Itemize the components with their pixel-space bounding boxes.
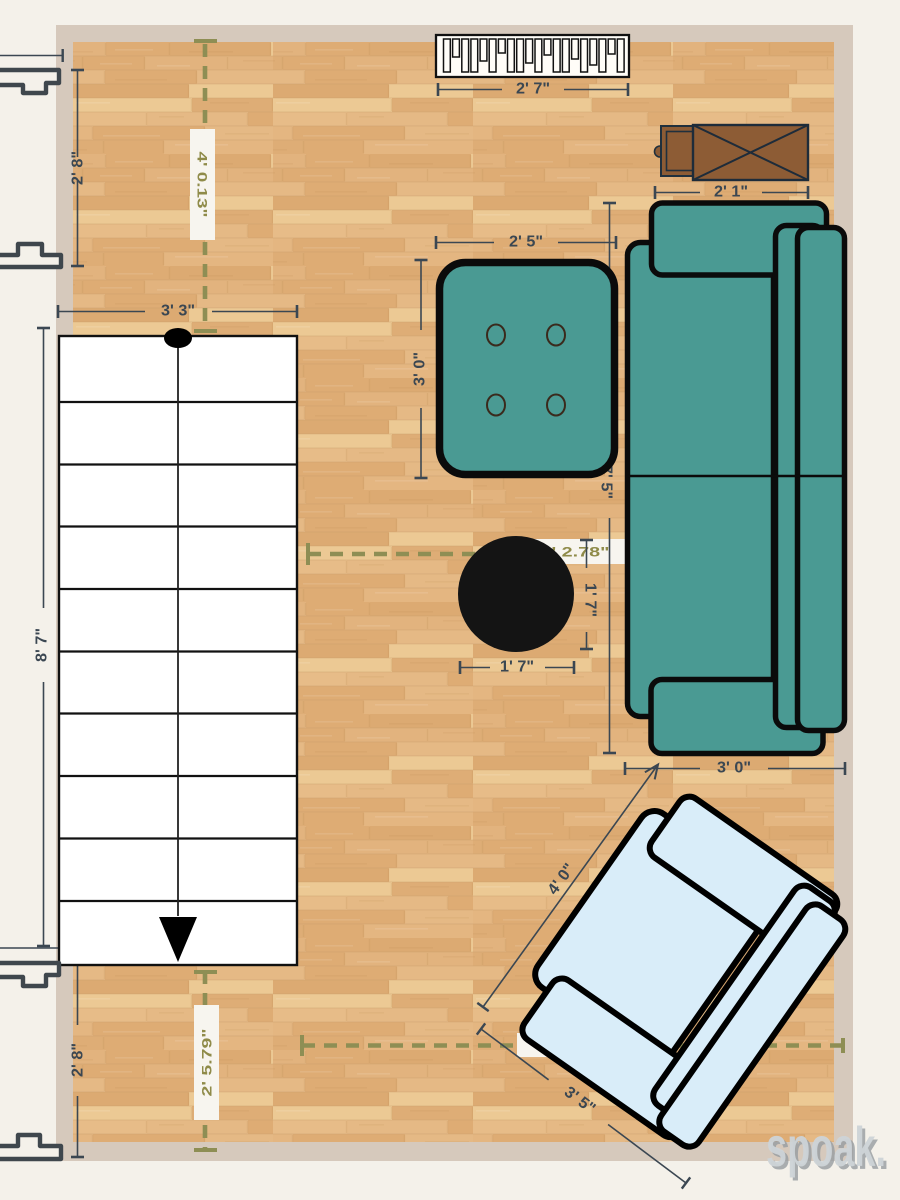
svg-text:1' 7": 1' 7" [582, 583, 599, 617]
svg-text:2' 8": 2' 8" [70, 151, 87, 185]
svg-text:3' 0": 3' 0" [412, 352, 429, 386]
svg-text:2' 5": 2' 5" [509, 234, 543, 251]
svg-text:1' 7": 1' 7" [500, 659, 534, 676]
svg-text:2' 5.79": 2' 5.79" [199, 1029, 215, 1097]
svg-text:3' 0": 3' 0" [717, 760, 751, 777]
svg-text:2' 8": 2' 8" [70, 1043, 87, 1077]
svg-text:spoak.: spoak. [766, 1115, 886, 1178]
svg-text:2' 1": 2' 1" [714, 184, 748, 201]
svg-text:3' 3": 3' 3" [161, 303, 195, 320]
svg-text:8' 7": 8' 7" [34, 628, 51, 662]
svg-text:4' 0.13": 4' 0.13" [195, 152, 211, 218]
svg-text:2' 7": 2' 7" [516, 81, 550, 98]
